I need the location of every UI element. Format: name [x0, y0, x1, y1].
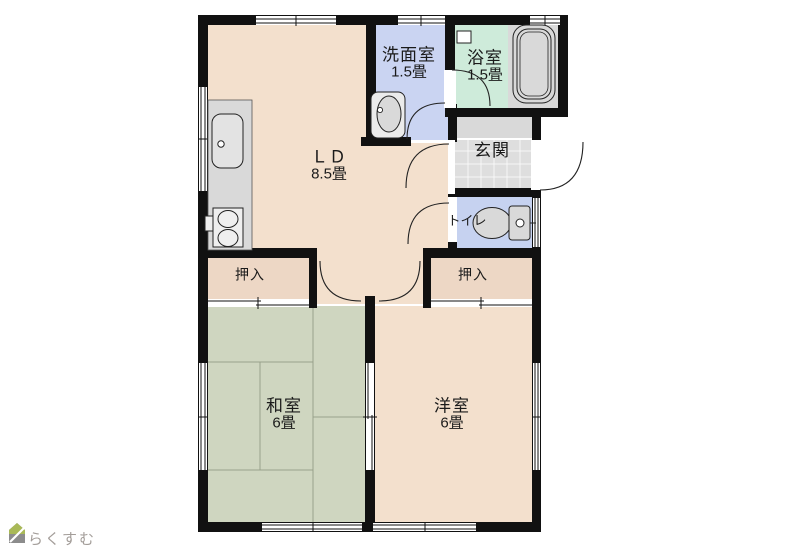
window-japanese-room-bottom	[262, 522, 362, 532]
room-label-washroom: 洗面室 1.5畳	[382, 47, 436, 82]
room-label-toilet: トイレ	[447, 214, 486, 228]
room-name: ＬＤ	[311, 149, 347, 167]
room-size: 8.5畳	[311, 167, 347, 183]
room-label-japanese-room: 和室 6畳	[266, 398, 302, 433]
wall-post-left	[309, 248, 317, 308]
window-washroom-top	[398, 15, 445, 26]
window-japanese-room-left	[198, 363, 208, 470]
wall-toilet-bottom	[423, 248, 541, 258]
bath-fixture	[457, 31, 471, 43]
bathtub-icon	[513, 25, 555, 103]
wall-top	[198, 15, 568, 25]
entrance-door-opening	[531, 140, 542, 190]
kitchen-unit	[205, 100, 252, 250]
room-size: 1.5畳	[467, 68, 503, 84]
room-name: 和室	[266, 398, 302, 416]
wall-hall-left	[448, 104, 457, 142]
room-size: 6畳	[440, 416, 463, 432]
room-name: 玄関	[474, 142, 510, 160]
room-name: トイレ	[447, 214, 486, 228]
faucet-icon	[218, 141, 224, 147]
window-western-room-right	[532, 363, 541, 470]
room-label-closet-right: 押入	[458, 267, 488, 282]
bath-door-opening	[444, 70, 456, 108]
house-icon	[9, 523, 25, 543]
stove-handle	[205, 216, 213, 231]
window-western-room-bottom	[373, 522, 476, 532]
room-name: 洋室	[434, 398, 470, 416]
wall-right-upper	[558, 15, 568, 117]
entrance-door-arc	[540, 142, 583, 190]
wall-post-right	[423, 248, 431, 308]
washbasin-unit	[371, 92, 405, 138]
room-size: 1.5畳	[391, 65, 427, 81]
room-label-bathroom: 浴室 1.5畳	[467, 50, 503, 85]
window-ld-left	[198, 87, 208, 191]
room-label-living-dining: ＬＤ 8.5畳	[311, 149, 347, 184]
wall-toilet-door-post	[448, 242, 457, 250]
wall-bath-bottom	[445, 108, 568, 117]
living-dining-floor	[315, 250, 425, 304]
room-name: 洗面室	[382, 47, 436, 65]
watermark-brand: らくすむ	[28, 528, 96, 549]
washbasin-faucet	[377, 107, 382, 112]
kitchen-sink-icon	[212, 114, 243, 168]
floor-plan-canvas: ＬＤ 8.5畳 洗面室 1.5畳 浴室 1.5畳 玄関 トイレ 押入 押入 和室…	[0, 0, 785, 556]
wall-washroom-bath	[445, 15, 455, 72]
room-label-western-room: 洋室 6畳	[434, 398, 470, 433]
room-name: 押入	[235, 267, 265, 282]
washbasin-bowl	[377, 96, 401, 132]
floor-plan-drawing	[0, 0, 785, 556]
room-label-closet-left: 押入	[235, 267, 265, 282]
toilet-tank-knob	[516, 219, 524, 227]
entrance-step-strip	[448, 140, 455, 194]
room-name: 押入	[458, 267, 488, 282]
room-label-entrance: 玄関	[474, 142, 510, 160]
window-bath-top	[530, 15, 560, 26]
room-name: 浴室	[467, 50, 503, 68]
room-size: 6畳	[272, 416, 295, 432]
window-ld-top	[256, 15, 336, 26]
wall-entrance-bottom	[448, 188, 532, 197]
